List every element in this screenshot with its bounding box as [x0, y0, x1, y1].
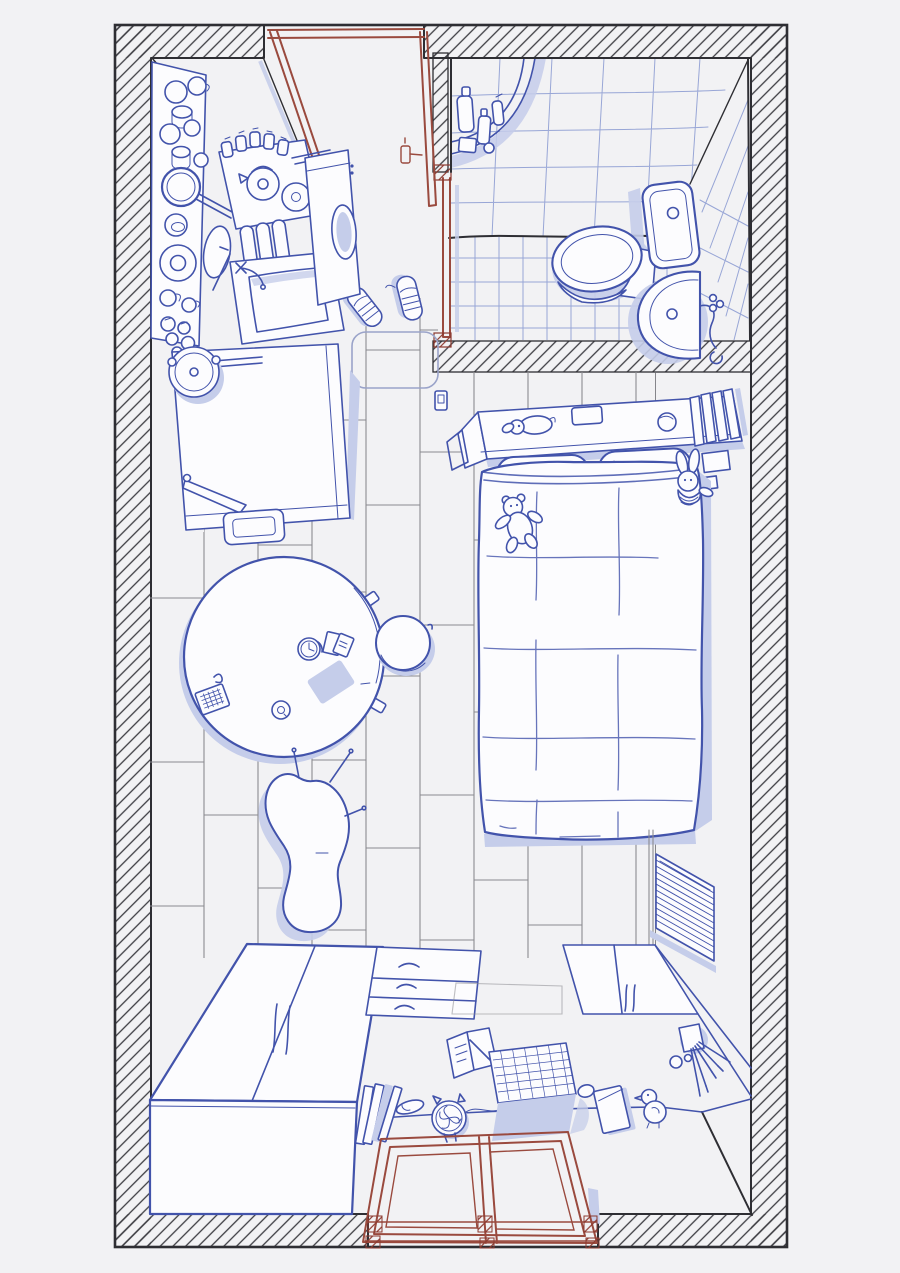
page-root — [0, 0, 900, 1273]
coaster — [272, 701, 290, 719]
bathroom-wall-left — [433, 53, 448, 172]
burner — [282, 183, 310, 211]
wall-top — [115, 25, 787, 58]
small-box — [571, 406, 602, 425]
apartment-illustration — [0, 0, 900, 1273]
light-switch — [435, 391, 447, 410]
wall-left — [115, 25, 151, 1247]
ball — [658, 413, 676, 431]
wall-right — [751, 25, 787, 1247]
step-box — [223, 509, 285, 545]
toilet-tank — [641, 180, 701, 269]
plate — [160, 245, 196, 281]
bathroom-wall-bottom — [433, 341, 751, 372]
